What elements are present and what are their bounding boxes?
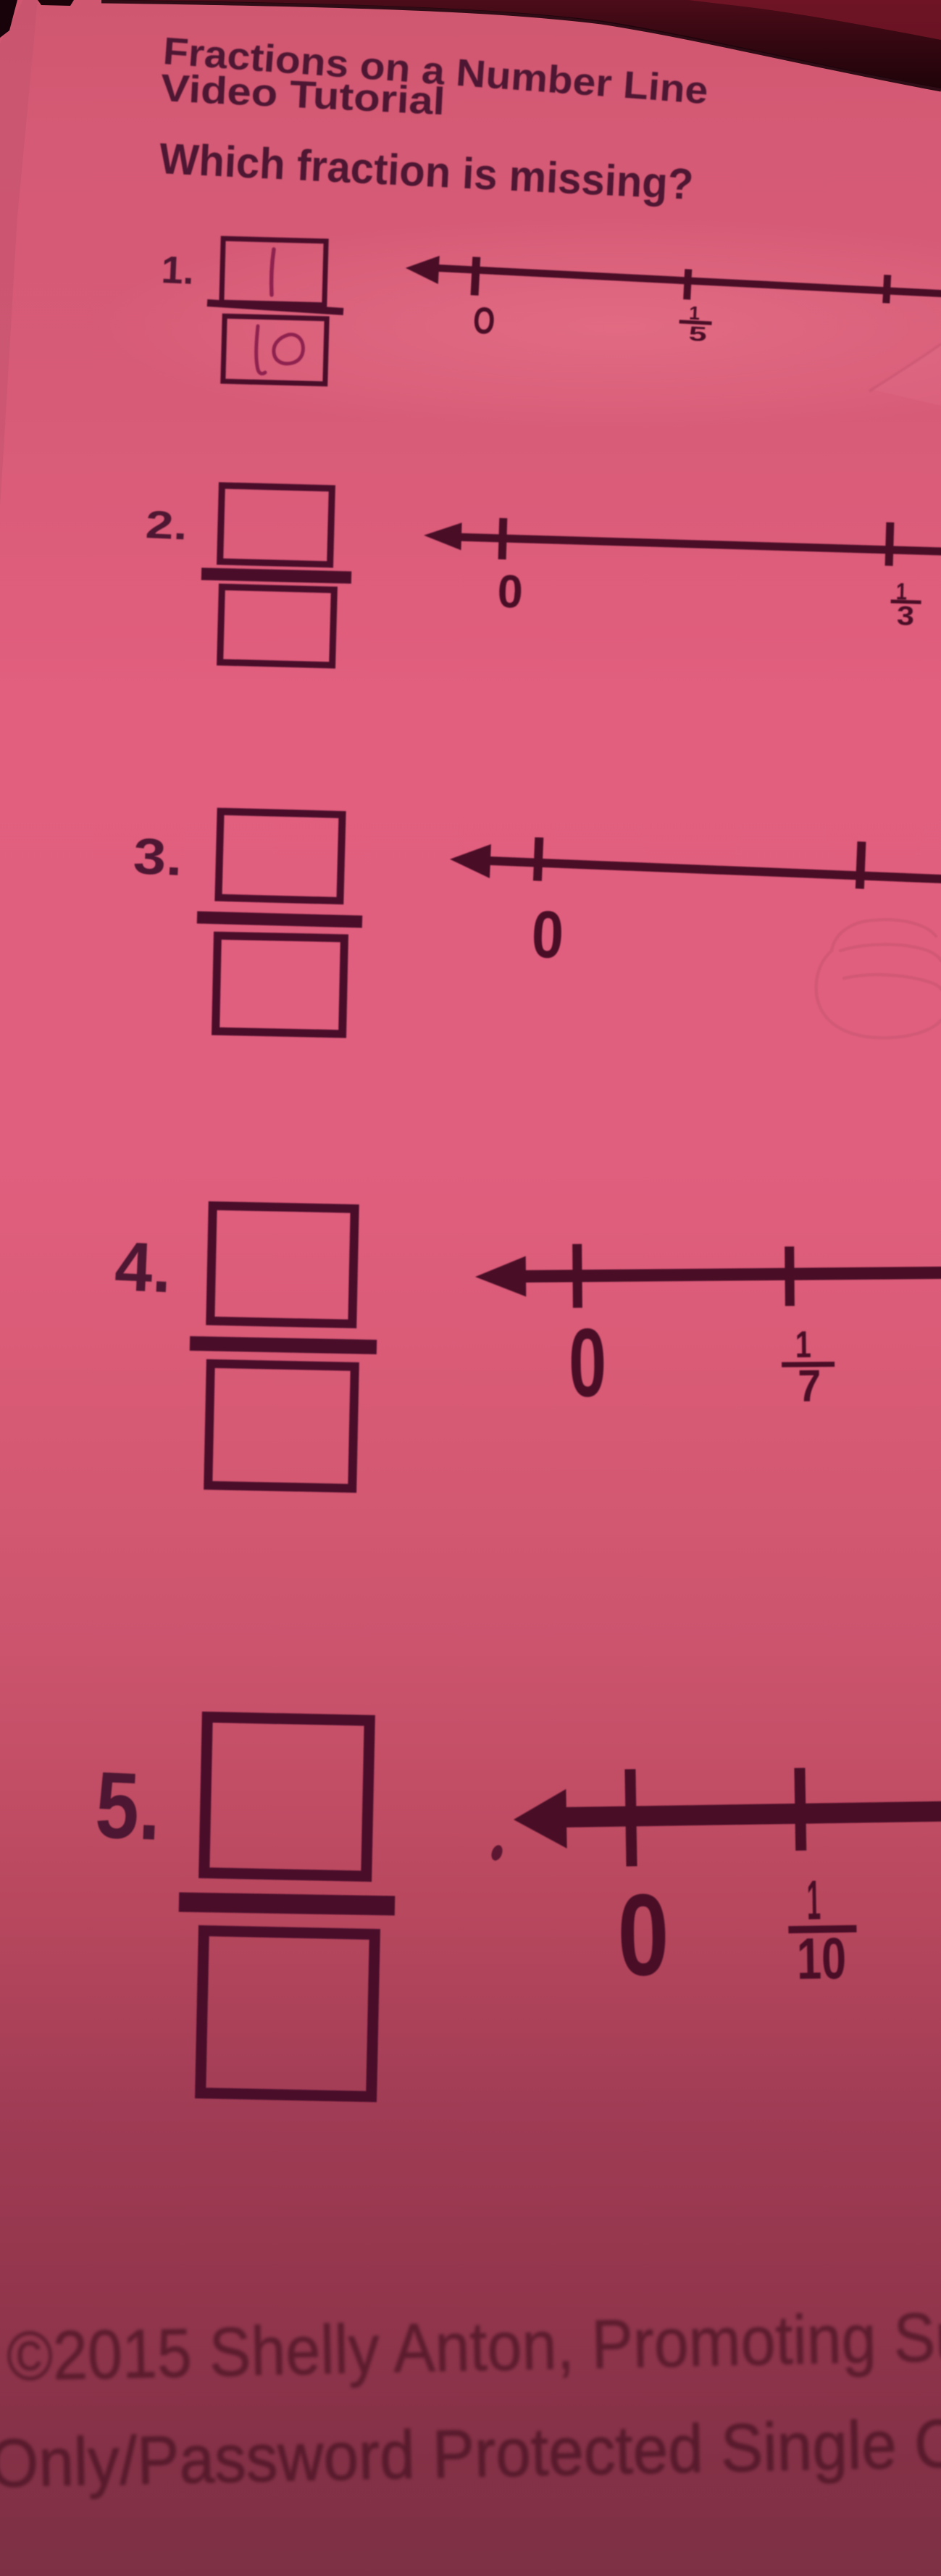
svg-text:10: 10 <box>796 1926 846 1992</box>
svg-text:1.: 1. <box>160 249 195 293</box>
svg-text:0: 0 <box>530 897 565 972</box>
svg-text:0: 0 <box>616 1870 670 2000</box>
svg-text:4.: 4. <box>113 1227 173 1307</box>
svg-text:1: 1 <box>806 1869 821 1931</box>
svg-text:0: 0 <box>568 1309 606 1417</box>
svg-text:3.: 3. <box>132 828 183 886</box>
svg-text:0: 0 <box>497 565 524 618</box>
svg-text:7: 7 <box>798 1362 821 1412</box>
svg-text:1: 1 <box>795 1324 812 1366</box>
svg-text:3: 3 <box>896 601 914 631</box>
svg-text:O: O <box>472 300 496 343</box>
svg-text:2.: 2. <box>145 503 189 548</box>
svg-text:5.: 5. <box>93 1751 163 1860</box>
svg-text:5: 5 <box>688 322 708 346</box>
